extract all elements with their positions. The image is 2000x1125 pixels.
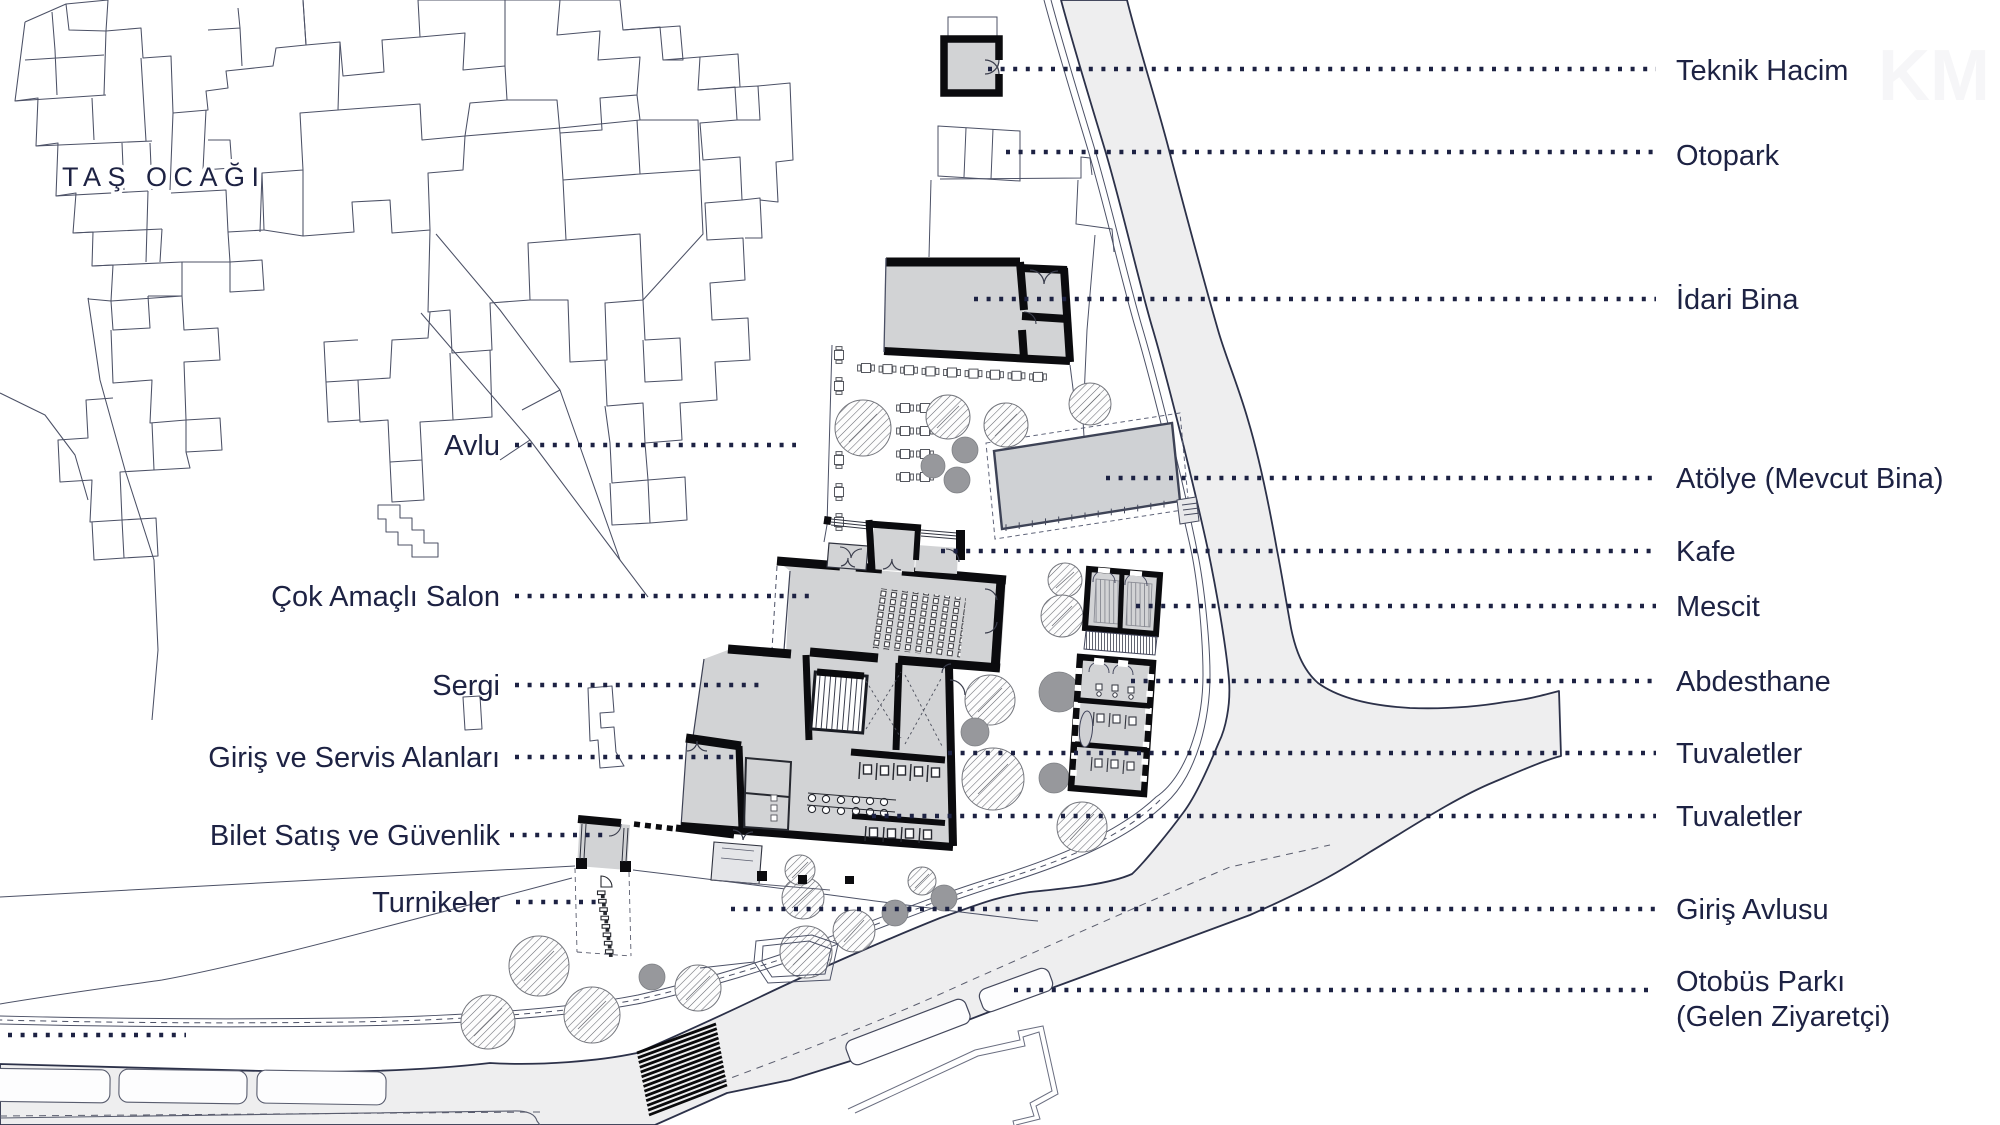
svg-text:Atölye (Mevcut Bina): Atölye (Mevcut Bina): [1676, 463, 1944, 495]
svg-text:Otopark: Otopark: [1676, 140, 1780, 172]
svg-text:Tuvaletler: Tuvaletler: [1676, 801, 1803, 833]
svg-text:Mescit: Mescit: [1676, 591, 1760, 623]
svg-text:Tuvaletler: Tuvaletler: [1676, 738, 1803, 770]
svg-text:(Gelen Ziyaretçi): (Gelen Ziyaretçi): [1676, 1001, 1890, 1033]
svg-text:Bilet Satış ve Güvenlik: Bilet Satış ve Güvenlik: [210, 820, 501, 852]
svg-text:Avlu: Avlu: [444, 430, 500, 462]
svg-text:Kafe: Kafe: [1676, 536, 1736, 568]
svg-text:İdari Bina: İdari Bina: [1676, 283, 1799, 316]
svg-text:Giriş Avlusu: Giriş Avlusu: [1676, 894, 1829, 926]
svg-text:Giriş ve Servis Alanları: Giriş ve Servis Alanları: [208, 742, 500, 774]
svg-text:Teknik Hacim: Teknik Hacim: [1676, 55, 1848, 87]
svg-text:Sergi: Sergi: [432, 670, 500, 702]
svg-text:Abdesthane: Abdesthane: [1676, 666, 1831, 698]
svg-text:Turnikeler: Turnikeler: [372, 887, 500, 919]
svg-text:KM: KM: [1878, 36, 1990, 116]
svg-text:TAŞ OCAĞI: TAŞ OCAĞI: [62, 161, 266, 192]
svg-text:Çok Amaçlı Salon: Çok Amaçlı Salon: [271, 581, 500, 613]
svg-text:Otobüs Parkı: Otobüs Parkı: [1676, 966, 1845, 998]
